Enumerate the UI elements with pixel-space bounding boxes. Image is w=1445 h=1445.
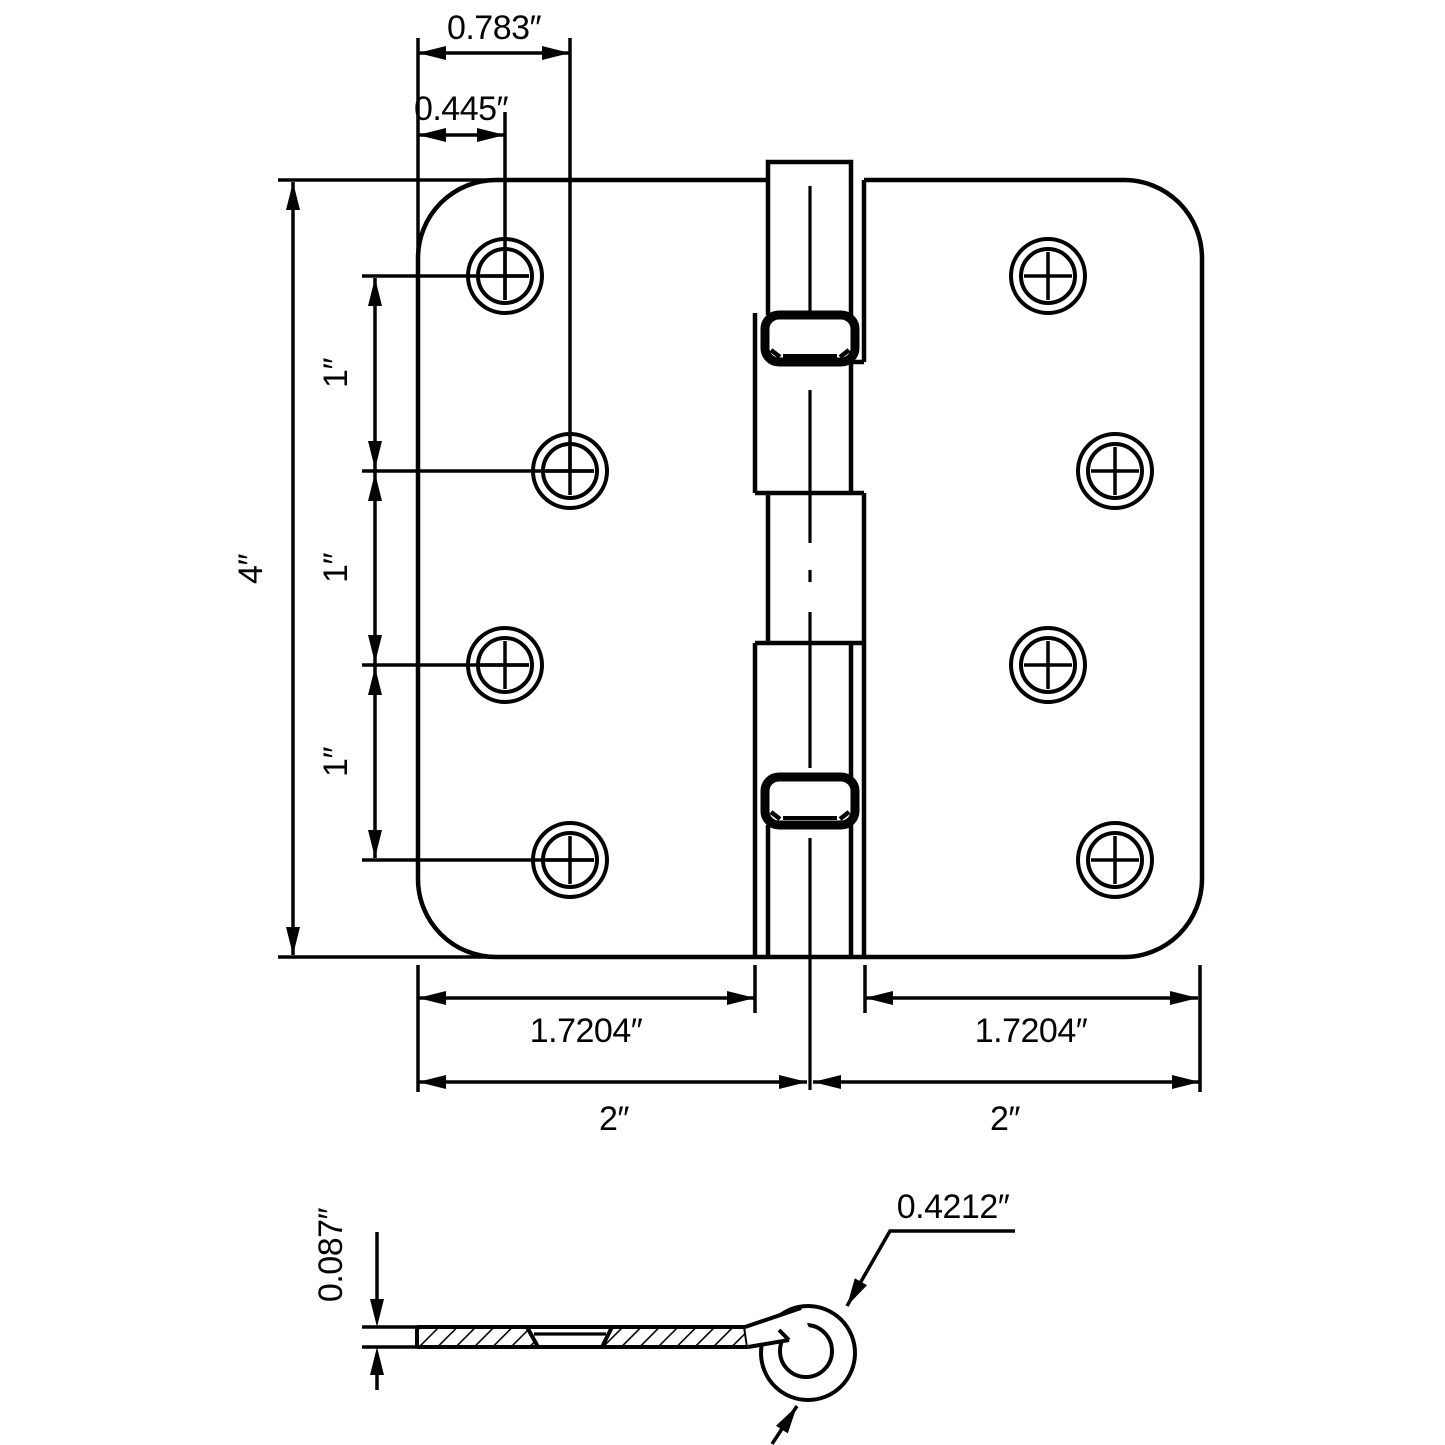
dim-top-hole-offset: 0.783″ [447,9,542,47]
technical-drawing-canvas: 0.783″ 0.445″ 4″ 1″ 1″ 1″ 1.7204″ 1.7204… [0,0,1445,1445]
leaf-cross-section [417,1327,748,1347]
screw-hole [1078,434,1152,508]
knuckle-curl [745,1306,855,1400]
hinge-barrel [755,162,864,1090]
dim-knuckle-diameter: 0.4212″ [897,1188,1010,1226]
thickness-arrowheads [370,1299,384,1375]
dimension-lines [293,53,1200,1082]
dim-hole-spacing-middle: 1″ [317,553,355,583]
dim-hole-spacing-bottom: 1″ [317,747,355,777]
thickness-dimension [362,1232,417,1390]
side-view-labels: 0.087″ 0.4212″ [312,1188,1010,1302]
dim-corner-hole-offset: 0.445″ [414,90,509,128]
side-view: 0.087″ 0.4212″ [312,1188,1015,1444]
dim-right-half-width: 2″ [990,1100,1020,1138]
dim-height: 4″ [232,554,270,584]
hinge-drawing-svg: 0.783″ 0.445″ 4″ 1″ 1″ 1″ 1.7204″ 1.7204… [0,0,1445,1445]
dim-leaf-thickness: 0.087″ [312,1207,350,1302]
dim-right-leaf-width: 1.7204″ [975,1012,1088,1050]
dim-left-half-width: 2″ [599,1100,629,1138]
left-leaf-outline [418,180,768,957]
screw-hole [1011,239,1085,313]
dim-left-leaf-width: 1.7204″ [530,1012,643,1050]
bearing-bottom [765,777,855,825]
knuckle-diameter-leader [772,1231,1015,1444]
arrowheads [286,46,1200,1089]
dim-hole-spacing-top: 1″ [317,358,355,388]
pin-cap [768,162,851,181]
front-view: 0.783″ 0.445″ 4″ 1″ 1″ 1″ 1.7204″ 1.7204… [232,9,1202,1138]
screw-hole [1078,823,1152,897]
bearing-top [765,315,855,362]
screw-hole [1011,628,1085,702]
